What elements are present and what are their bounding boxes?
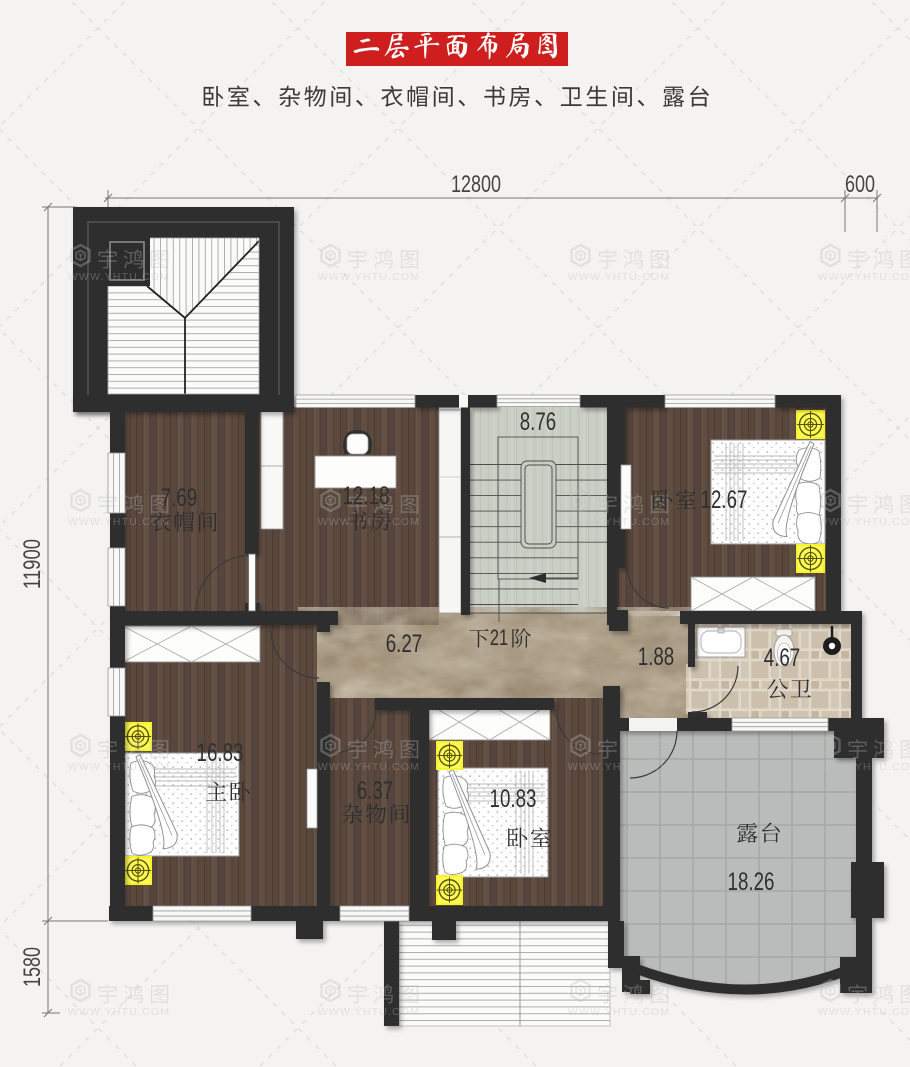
svg-text:10.83: 10.83 xyxy=(490,785,537,813)
svg-text:12.67: 12.67 xyxy=(701,486,748,514)
svg-text:4.67: 4.67 xyxy=(764,644,801,672)
svg-text:12800: 12800 xyxy=(451,171,501,198)
svg-text:8.76: 8.76 xyxy=(520,408,557,436)
svg-text:1580: 1580 xyxy=(19,947,46,987)
svg-text:600: 600 xyxy=(845,171,875,198)
svg-text:18.26: 18.26 xyxy=(728,868,775,896)
svg-text:7.69: 7.69 xyxy=(161,484,198,512)
svg-text:11900: 11900 xyxy=(19,539,46,589)
svg-text:6.27: 6.27 xyxy=(386,630,423,658)
svg-text:16.83: 16.83 xyxy=(197,739,244,767)
svg-text:12.18: 12.18 xyxy=(343,482,390,510)
svg-text:21: 21 xyxy=(490,625,508,650)
svg-text:6.37: 6.37 xyxy=(357,777,394,805)
svg-text:1.88: 1.88 xyxy=(638,643,675,671)
